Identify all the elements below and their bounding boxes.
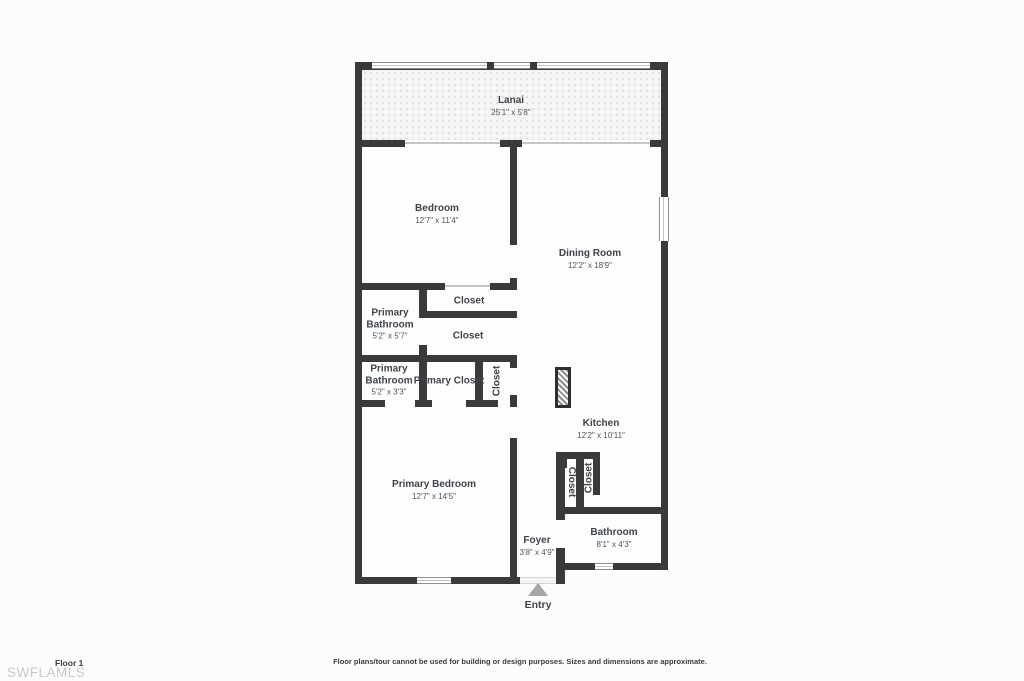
room-label-closet-mid-vertical: Closet [491, 366, 503, 397]
window [417, 577, 451, 584]
wall [415, 400, 432, 407]
wall [355, 400, 385, 407]
watermark: SWFLAMLS [7, 665, 85, 680]
sliding-door [405, 142, 500, 144]
wall [661, 62, 668, 570]
room-label-closet-kitchen-left: Closet [565, 467, 577, 498]
room-label-kitchen: Kitchen 12'2" x 10'11" [577, 418, 625, 440]
wall [560, 452, 567, 468]
room-label-lanai: Lanai 25'1" x 5'8" [491, 95, 530, 117]
wall [355, 355, 517, 362]
wall [355, 140, 405, 147]
room-label-closet-lower: Closet [453, 330, 484, 342]
room-label-primary-closet: Primary Closet [413, 375, 485, 387]
wall [556, 563, 565, 584]
room-label-bedroom: Bedroom 12'7" x 11'4" [415, 203, 459, 225]
floor-plan-page: Lanai 25'1" x 5'8" Bedroom 12'7" x 11'4"… [0, 0, 1024, 681]
wall [490, 283, 517, 290]
wall [556, 548, 565, 563]
disclaimer-text: Floor plans/tour cannot be used for buil… [333, 657, 707, 666]
window [659, 197, 669, 241]
wall [530, 62, 537, 70]
wall [556, 507, 668, 514]
wall [510, 438, 517, 577]
entry-arrow-icon [528, 583, 548, 596]
room-label-dining-room: Dining Room 12'2" x 18'9" [559, 248, 621, 270]
closet-door [445, 285, 490, 287]
room-label-bathroom: Bathroom 8'1" x 4'3" [590, 527, 637, 549]
wall [510, 355, 517, 368]
room-label-closet-kitchen-right: Closet [583, 463, 595, 494]
wall [487, 62, 494, 70]
window [372, 62, 650, 69]
hatched-fixture [555, 367, 571, 408]
wall [466, 400, 498, 407]
room-label-foyer: Foyer 3'8" x 4'9" [520, 535, 555, 557]
room-label-primary-bathroom-1: Primary Bathroom 5'2" x 5'7" [354, 307, 426, 340]
wall [510, 140, 517, 245]
wall [650, 140, 668, 147]
window [595, 563, 613, 570]
wall [510, 400, 517, 407]
room-label-primary-bedroom: Primary Bedroom 12'7" x 14'5" [392, 479, 476, 501]
entry-label: Entry [525, 599, 552, 611]
sliding-door [522, 142, 650, 144]
room-label-closet-upper: Closet [454, 295, 485, 307]
wall [355, 283, 445, 290]
wall [427, 311, 517, 318]
